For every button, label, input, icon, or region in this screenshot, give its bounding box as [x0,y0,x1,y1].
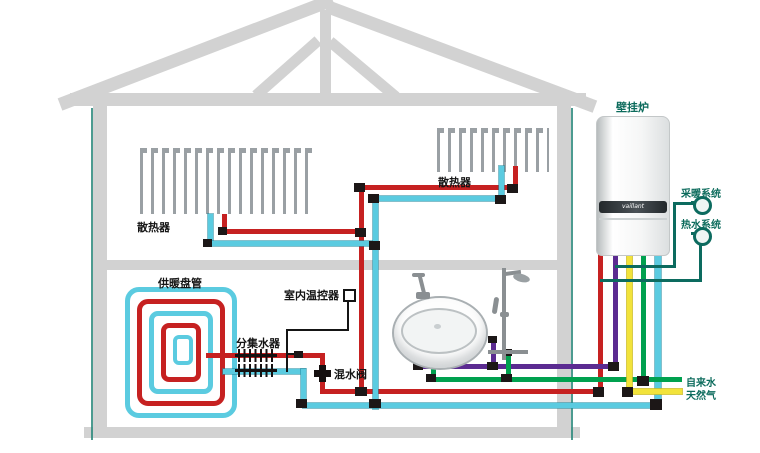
thermostat-wire [347,299,349,330]
thermostat-wire [286,329,349,331]
pipe-tee [369,399,381,408]
shower-mixer [500,312,509,317]
boiler-brand: vaillant [622,203,644,210]
label-manifold: 分集水器 [236,335,280,351]
pipe-heating-return-riser [373,196,378,409]
boiler-logo-band: vaillant [599,201,667,213]
hot-water-system-line [699,242,702,282]
floor-slab-bottom [84,427,580,438]
hot-water-system-line [600,279,700,282]
pipe-heating-supply [222,229,364,234]
pipe-tee [355,228,366,237]
label-room-thermostat: 室内温控器 [284,287,339,303]
pipe-fitting [488,336,497,343]
pipe-elbow [495,195,506,204]
pipe-elbow [622,387,633,397]
radiator-left-top [140,148,312,153]
pipe-heating-supply-riser [359,185,364,395]
roof-king-post [320,10,331,95]
pipe-elbow [593,387,604,397]
pipe-elbow [203,239,212,247]
floor-slab-middle [107,260,557,270]
pipe-tee [487,362,498,370]
label-mixing-valve: 混水阀 [334,366,367,382]
pipe-elbow [354,183,365,192]
pipe-heating-return [499,166,504,198]
sink-drain [434,324,441,329]
roof-strut-left [252,36,321,99]
sink-basin-inner [401,308,477,354]
pipe-elbow [608,362,619,371]
pipe-boiler-return [655,250,661,407]
heating-system-line [673,203,676,268]
pipe-tee [355,387,367,396]
wall-left-edge-line [91,108,93,440]
faucet-spout-tip [412,273,425,277]
hand-shower-icon [492,297,500,315]
shower-shelf [488,350,528,354]
manifold-bar-return [238,364,274,377]
label-floor-coil: 供暖盘管 [158,275,202,291]
pipe-heating-return-main [303,403,659,408]
pipe-boiler-supply [598,250,603,394]
label-heating-system: 采暖系统 [681,185,721,200]
mixing-valve-icon [319,365,326,382]
pipe-tee [637,376,649,386]
radiator-right [437,132,549,172]
pipe-tee [501,374,512,382]
label-radiator-right: 散热器 [438,174,471,190]
wall-hung-boiler: vaillant [596,116,670,256]
boiler-groove [599,218,667,220]
pipe-gas [627,389,682,394]
pipe-elbow [426,374,436,382]
pipe-tap-water [641,250,646,381]
pipe-heating-return [373,196,504,201]
pipe-tee [369,241,380,250]
pipe-elbow [296,399,307,408]
label-boiler: 壁挂炉 [616,99,649,115]
thermostat-box-icon [343,289,356,302]
pipe-gas [627,250,632,391]
heating-system-line [615,265,675,268]
pipe-elbow [507,184,518,193]
thermostat-wire [286,329,288,372]
heating-system-diagram: vaillant 散热器 散热器 供暖盘管 分集水器 室内温控器 混水阀 壁挂炉… [0,0,760,453]
thermostat-sensor [294,351,303,358]
wall-left [93,104,107,428]
label-radiator-left: 散热器 [137,219,170,235]
pipe-elbow [218,227,227,235]
pipe-heating-return [208,241,377,246]
radiator-right-top [437,128,549,133]
roof-strut-right [326,37,399,101]
pipe-elbow [368,194,379,203]
label-natural-gas: 天然气 [686,387,716,402]
label-hot-water-system: 热水系统 [681,216,721,231]
shower-head-icon [512,272,530,284]
pipe-elbow [650,399,662,410]
floor-coil-ring-5 [173,335,193,365]
radiator-left [140,152,312,214]
